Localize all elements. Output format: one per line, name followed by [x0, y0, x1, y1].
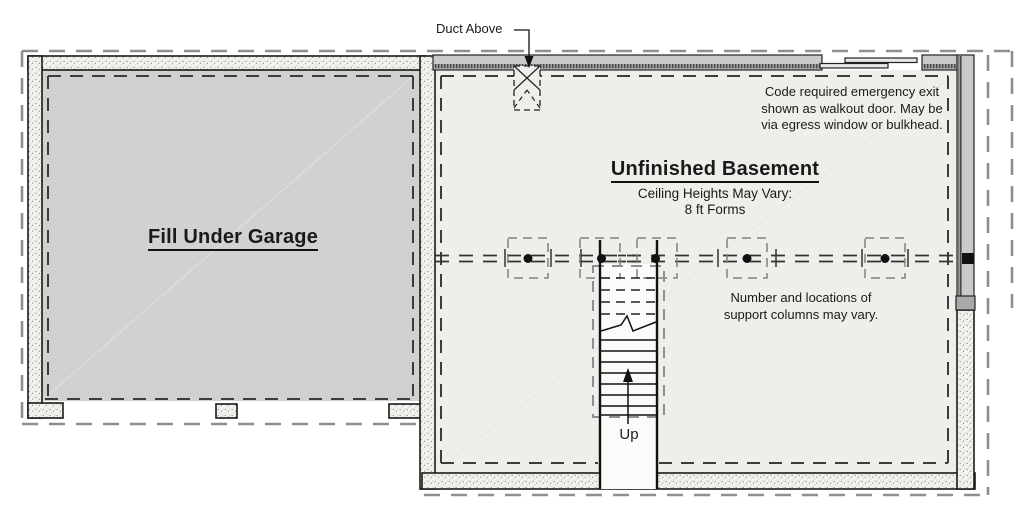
basement-bottom-wall — [422, 473, 975, 489]
basement-right-lower-wall — [957, 310, 974, 489]
basement-title-block: Unfinished Basement Ceiling Heights May … — [590, 158, 840, 218]
basement-subtitle-1: Ceiling Heights May Vary: — [590, 186, 840, 202]
garage-label-text: Fill Under Garage — [148, 226, 318, 251]
basement-title: Unfinished Basement — [590, 158, 840, 183]
garage-corner-pier — [28, 403, 63, 418]
up-label: Up — [608, 426, 650, 443]
garage-left-wall — [28, 56, 42, 418]
support-columns-note-line2: support columns may vary. — [692, 307, 910, 324]
basement-floor-plan: Duct Above Code required emergency exit … — [0, 0, 1024, 521]
basement-subtitle-2: 8 ft Forms — [590, 202, 840, 218]
walkout-door — [820, 58, 917, 68]
emergency-exit-note-line3: via egress window or bulkhead. — [736, 117, 968, 134]
support-columns-note: Number and locations of support columns … — [692, 290, 910, 323]
emergency-exit-note-line1: Code required emergency exit — [736, 84, 968, 101]
garage-right-pier — [389, 404, 422, 418]
duct-symbol — [514, 66, 540, 110]
basement-title-text: Unfinished Basement — [611, 158, 819, 183]
floor-plan-drawing — [0, 0, 1024, 521]
beam-pocket — [962, 253, 974, 264]
garage-top-wall — [28, 56, 425, 70]
wall-transition-cap — [956, 296, 975, 310]
emergency-exit-note-line2: shown as walkout door. May be — [736, 101, 968, 118]
garage-label: Fill Under Garage — [110, 226, 356, 251]
shared-wall — [420, 56, 435, 489]
duct-above-label: Duct Above — [436, 21, 516, 36]
garage-middle-pier — [216, 404, 237, 418]
emergency-exit-note: Code required emergency exit shown as wa… — [736, 84, 968, 134]
support-columns-note-line1: Number and locations of — [692, 290, 910, 307]
